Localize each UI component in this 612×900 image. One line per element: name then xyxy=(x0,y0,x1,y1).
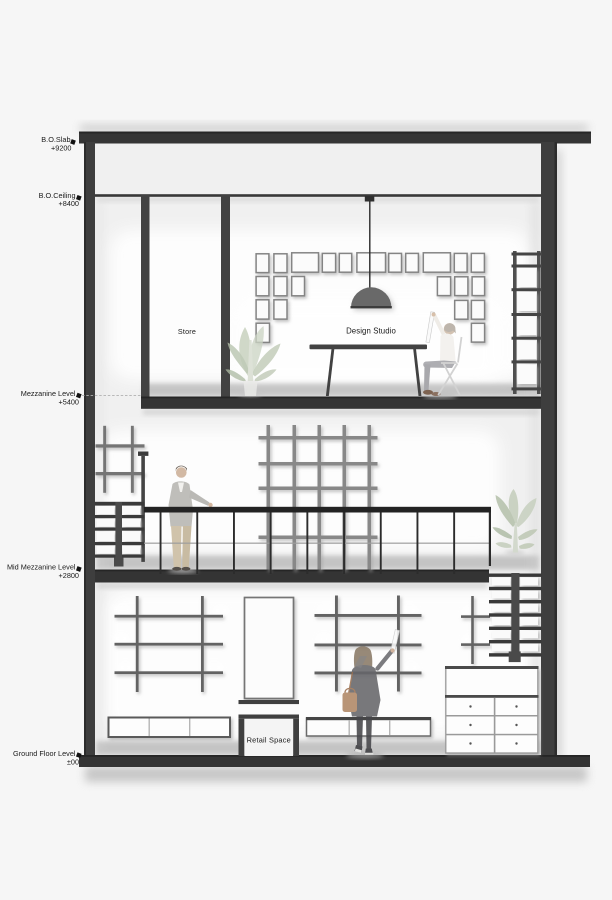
svg-text:+2800: +2800 xyxy=(59,571,80,580)
svg-text:Design Studio: Design Studio xyxy=(346,327,396,336)
svg-text:+5400: +5400 xyxy=(59,398,80,407)
svg-text:+8400: +8400 xyxy=(59,199,80,208)
svg-text:Retail Space: Retail Space xyxy=(247,736,291,745)
svg-text:B.O.Slab: B.O.Slab xyxy=(41,135,70,144)
svg-text:Store: Store xyxy=(178,327,196,336)
svg-text:±00: ±00 xyxy=(67,758,79,767)
svg-text:+9200: +9200 xyxy=(51,144,72,153)
